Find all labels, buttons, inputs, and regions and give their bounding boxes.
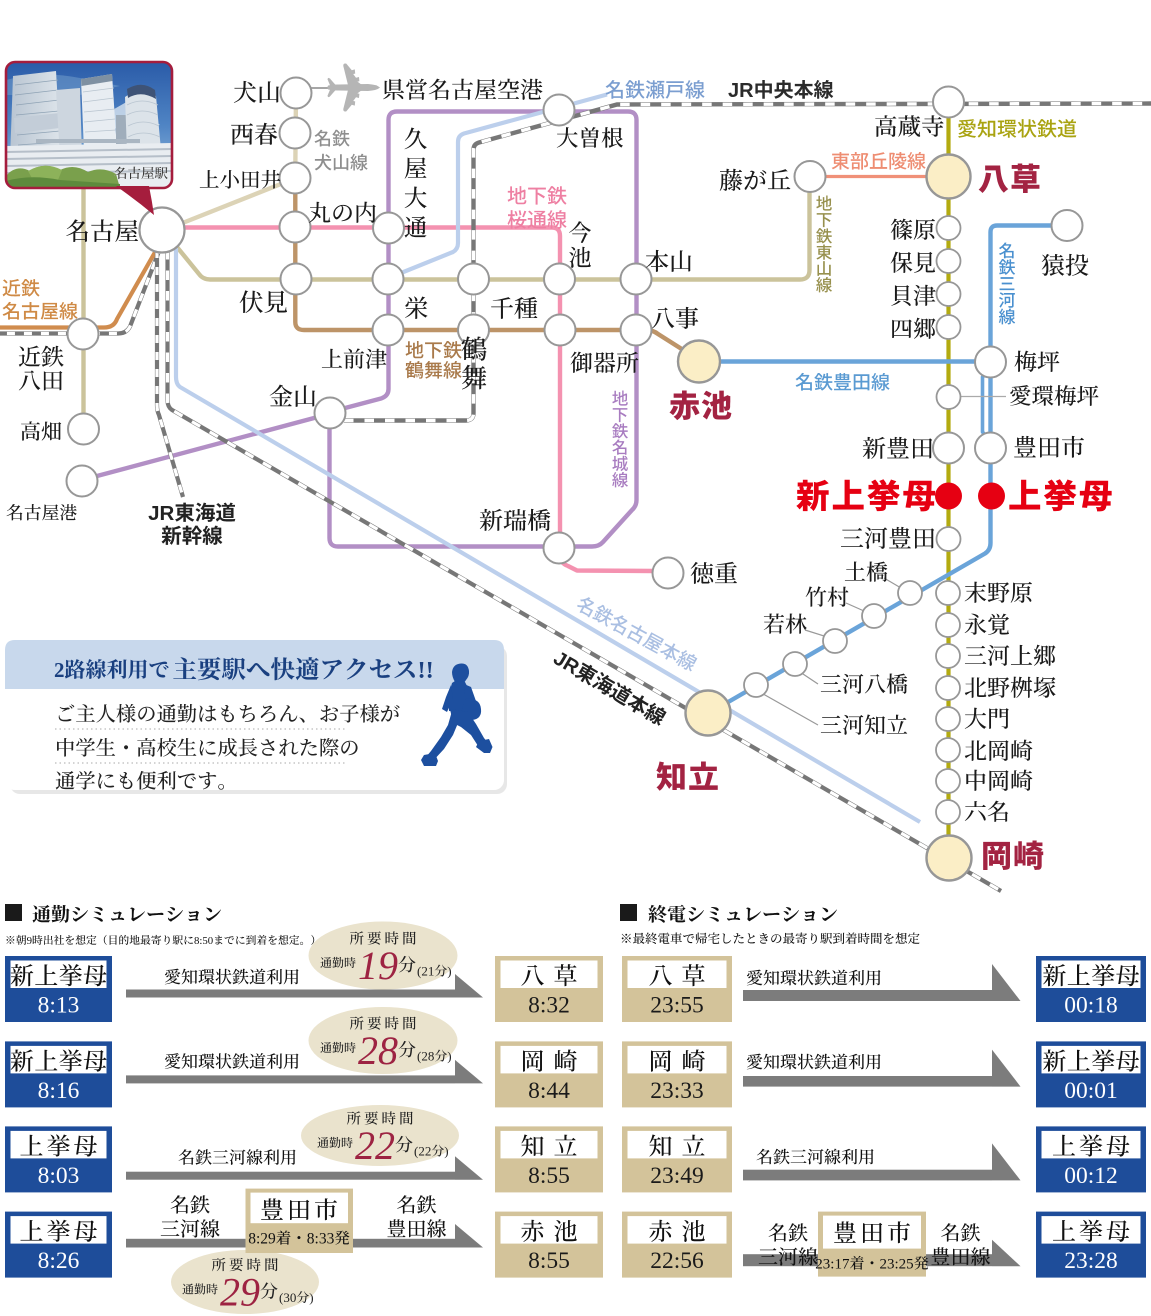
svg-text:(30: (30 <box>279 1290 296 1305</box>
svg-text:29: 29 <box>220 1270 260 1315</box>
svg-text:): ) <box>447 964 451 979</box>
svg-text:9: 9 <box>27 935 32 947</box>
svg-text:19: 19 <box>358 943 398 988</box>
svg-text:2: 2 <box>54 658 65 682</box>
svg-text:8:55: 8:55 <box>528 1163 570 1189</box>
svg-text:23:25: 23:25 <box>880 1257 914 1273</box>
svg-text:(21: (21 <box>417 964 434 979</box>
svg-text:JR: JR <box>148 502 174 525</box>
svg-text:00:18: 00:18 <box>1064 993 1118 1019</box>
svg-text:!!: !! <box>418 657 434 684</box>
svg-text:23:17: 23:17 <box>815 1257 850 1273</box>
svg-text:8:33: 8:33 <box>307 1231 335 1248</box>
svg-text:00:01: 00:01 <box>1064 1078 1118 1104</box>
svg-text:8:29: 8:29 <box>248 1231 276 1248</box>
svg-text:8:16: 8:16 <box>38 1078 80 1104</box>
svg-text:): ) <box>447 1049 451 1064</box>
svg-text:00:12: 00:12 <box>1064 1163 1118 1189</box>
svg-text:8:26: 8:26 <box>38 1248 80 1274</box>
svg-text:22: 22 <box>355 1123 395 1168</box>
svg-text:(28: (28 <box>417 1049 434 1064</box>
svg-text:): ) <box>444 1144 448 1159</box>
svg-text:28: 28 <box>358 1028 398 1073</box>
svg-text:8:55: 8:55 <box>528 1248 570 1274</box>
svg-text:8:13: 8:13 <box>38 993 80 1019</box>
svg-text:JR: JR <box>728 80 754 102</box>
svg-text:(22: (22 <box>414 1144 431 1159</box>
svg-text:8:50: 8:50 <box>194 935 213 947</box>
svg-text:8:44: 8:44 <box>528 1078 570 1104</box>
svg-text:23:28: 23:28 <box>1064 1248 1118 1274</box>
svg-text:23:33: 23:33 <box>650 1078 704 1104</box>
svg-text:8:32: 8:32 <box>528 993 570 1019</box>
svg-text:23:55: 23:55 <box>650 993 704 1019</box>
svg-text:22:56: 22:56 <box>650 1248 704 1274</box>
svg-text:): ) <box>309 1290 313 1305</box>
svg-text:8:03: 8:03 <box>38 1163 80 1189</box>
svg-text:23:49: 23:49 <box>650 1163 704 1189</box>
